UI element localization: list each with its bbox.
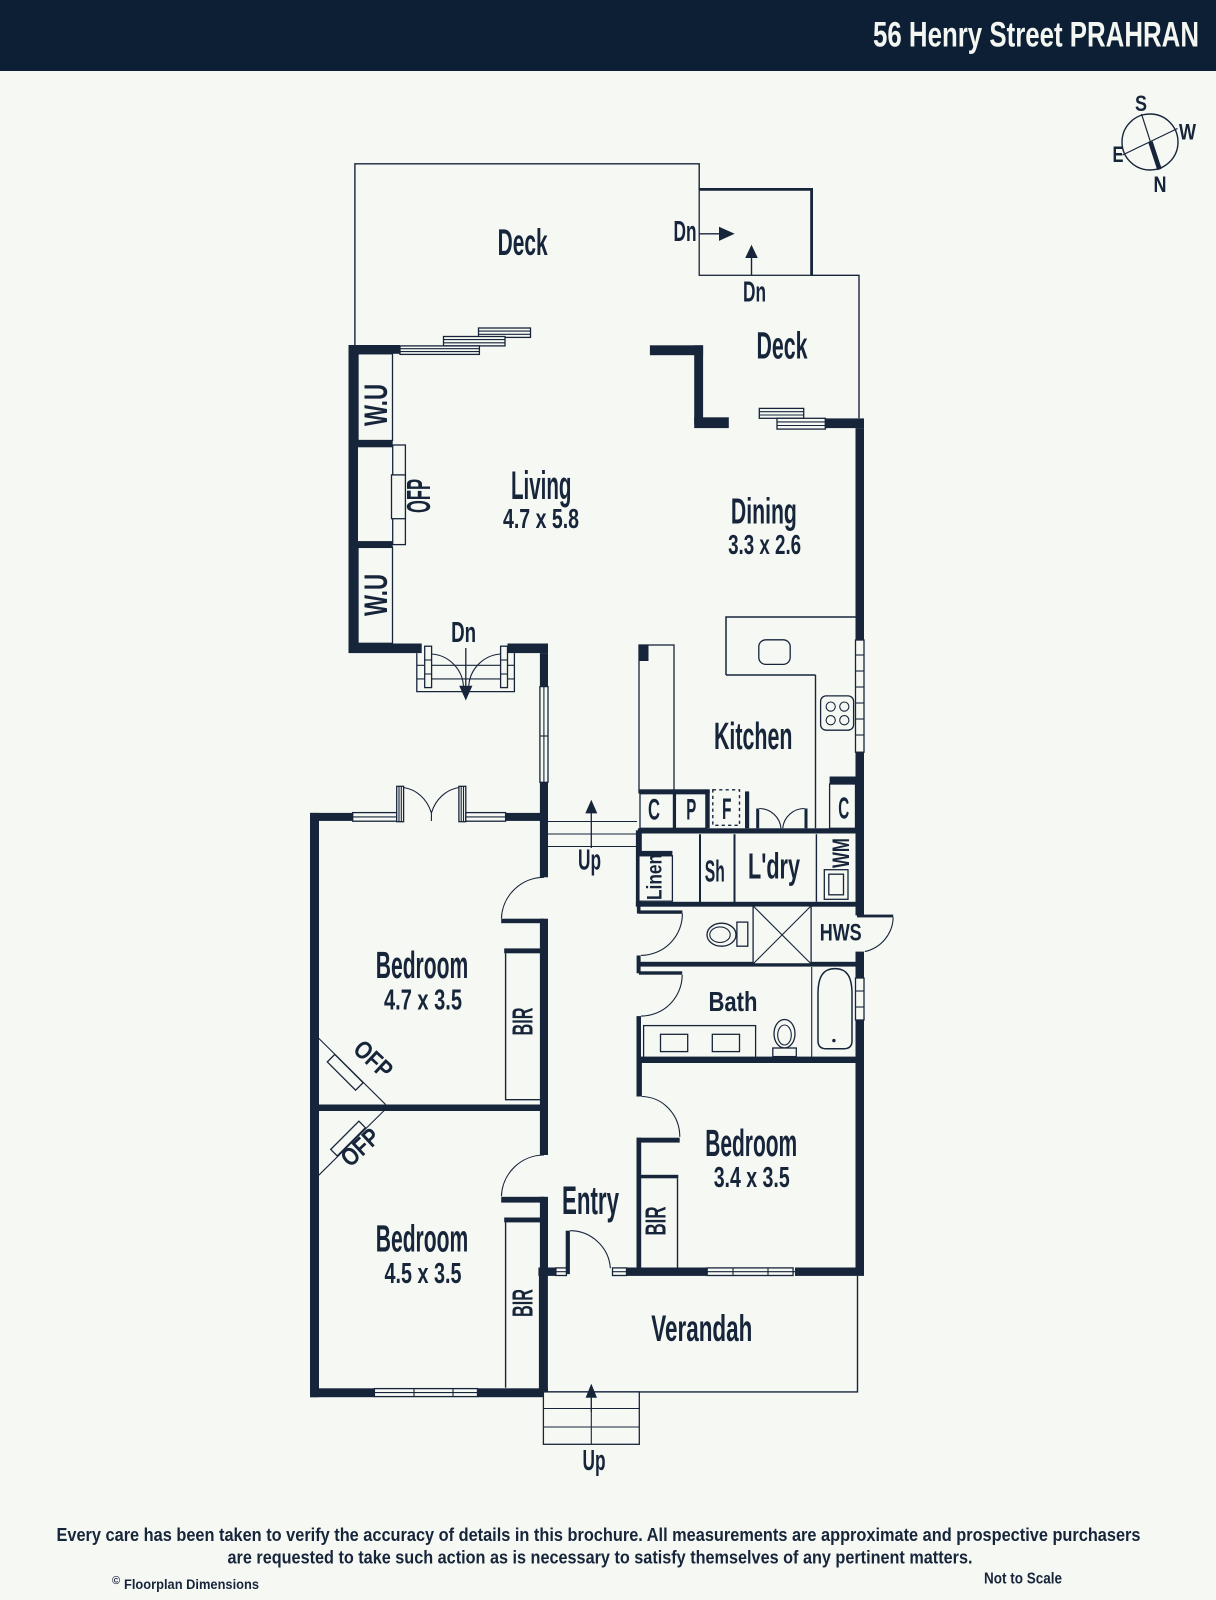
svg-text:Dining: Dining [731, 491, 797, 532]
svg-text:HWS: HWS [820, 920, 862, 947]
svg-text:3.4 x 3.5: 3.4 x 3.5 [714, 1162, 790, 1194]
svg-text:Dn: Dn [451, 617, 476, 649]
svg-text:Bedroom: Bedroom [376, 945, 469, 987]
svg-text:W: W [1179, 120, 1196, 145]
svg-text:Verandah: Verandah [651, 1308, 752, 1349]
svg-text:W.U: W.U [358, 574, 394, 616]
svg-text:Kitchen: Kitchen [714, 716, 793, 758]
svg-text:F: F [722, 793, 732, 826]
svg-text:Deck: Deck [498, 222, 548, 263]
svg-text:©: © [112, 1575, 120, 1587]
svg-text:4.5 x 3.5: 4.5 x 3.5 [385, 1258, 462, 1290]
svg-text:Floorplan Dimensions: Floorplan Dimensions [124, 1576, 259, 1592]
svg-text:Bedroom: Bedroom [705, 1123, 797, 1165]
svg-text:P: P [686, 794, 696, 827]
svg-text:L'dry: L'dry [748, 846, 800, 887]
svg-text:Sh: Sh [705, 854, 725, 889]
svg-text:Deck: Deck [757, 326, 808, 368]
svg-text:Entry: Entry [562, 1179, 619, 1223]
svg-text:Living: Living [511, 464, 572, 508]
svg-text:BIR: BIR [508, 1007, 540, 1035]
svg-text:Linen: Linen [644, 854, 667, 900]
svg-text:WM: WM [828, 838, 855, 868]
svg-text:Up: Up [583, 1445, 606, 1477]
svg-text:3.3 x 2.6: 3.3 x 2.6 [728, 529, 801, 560]
svg-text:E: E [1113, 142, 1124, 167]
svg-text:C: C [838, 791, 849, 826]
svg-text:Not to Scale: Not to Scale [984, 1571, 1062, 1588]
svg-text:C: C [648, 794, 660, 827]
svg-text:are requested to take such act: are requested to take such action as is … [228, 1548, 973, 1568]
svg-text:BIR: BIR [508, 1289, 540, 1317]
svg-text:Bedroom: Bedroom [376, 1219, 469, 1261]
svg-text:4.7 x 5.8: 4.7 x 5.8 [503, 503, 579, 534]
svg-text:4.7 x 3.5: 4.7 x 3.5 [384, 985, 462, 1017]
svg-text:Bath: Bath [709, 986, 758, 1017]
svg-text:N: N [1154, 172, 1167, 197]
svg-text:Up: Up [578, 845, 601, 877]
svg-text:56 Henry Street PRAHRAN: 56 Henry Street PRAHRAN [873, 15, 1199, 55]
svg-text:BIR: BIR [641, 1206, 673, 1235]
svg-text:OFP: OFP [400, 479, 437, 513]
svg-text:W.U: W.U [358, 384, 394, 426]
svg-text:Dn: Dn [674, 216, 697, 248]
svg-text:Every care has been taken to v: Every care has been taken to verify the … [57, 1525, 1141, 1545]
svg-text:Dn: Dn [743, 277, 766, 309]
svg-text:S: S [1135, 91, 1147, 116]
